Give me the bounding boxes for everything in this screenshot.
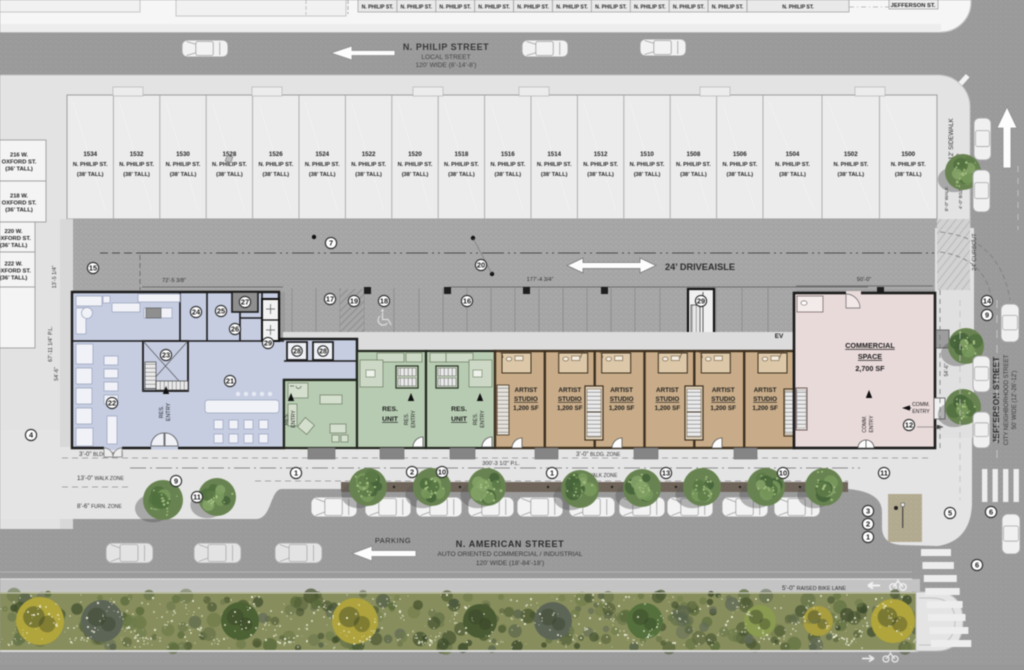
svg-text:28: 28	[293, 349, 301, 356]
svg-text:(36’ TALL): (36’ TALL)	[5, 167, 33, 173]
svg-text:N. PHILIP ST.: N. PHILIP ST.	[351, 162, 386, 168]
svg-text:RES.: RES.	[284, 413, 290, 425]
svg-text:N. PHILIP ST.: N. PHILIP ST.	[258, 162, 293, 168]
svg-text:1534: 1534	[83, 151, 97, 158]
svg-text:N. PHILIP ST.: N. PHILIP ST.	[712, 4, 744, 10]
svg-text:N. PHILIP ST.: N. PHILIP ST.	[676, 162, 711, 168]
svg-text:(36’ TALL): (36’ TALL)	[5, 208, 33, 214]
svg-text:24: 24	[192, 308, 201, 317]
svg-text:N. PHILIP ST.: N. PHILIP ST.	[782, 4, 814, 10]
svg-text:21: 21	[226, 377, 234, 386]
svg-text:RES.: RES.	[451, 406, 467, 413]
svg-text:13: 13	[662, 469, 670, 478]
svg-text:67’-11 1/4” P.L.: 67’-11 1/4” P.L.	[48, 326, 54, 362]
svg-text:3: 3	[866, 507, 870, 516]
svg-text:ENTRY: ENTRY	[480, 410, 486, 428]
svg-text:14: 14	[983, 297, 992, 306]
svg-text:(36’ TALL): (36’ TALL)	[0, 243, 27, 249]
svg-text:N. PHILIP ST.: N. PHILIP ST.	[166, 162, 201, 168]
svg-text:20: 20	[477, 261, 485, 270]
svg-text:N. PHILIP ST.: N. PHILIP ST.	[398, 162, 433, 168]
svg-text:ENTRY: ENTRY	[411, 410, 417, 428]
svg-text:N. PHILIP ST.: N. PHILIP ST.	[517, 4, 549, 10]
svg-text:OXFORD ST.: OXFORD ST.	[0, 236, 31, 242]
svg-text:N. PHILIP ST.: N. PHILIP ST.	[439, 4, 471, 10]
svg-text:(38’ TALL): (38’ TALL)	[309, 172, 336, 178]
svg-text:2: 2	[866, 520, 870, 529]
svg-text:ARTIST: ARTIST	[610, 387, 633, 394]
svg-text:19: 19	[350, 297, 358, 306]
svg-text:ARTIST: ARTIST	[656, 387, 679, 394]
svg-text:12’ SIDEWALK: 12’ SIDEWALK	[948, 117, 955, 159]
svg-text:STUDIO: STUDIO	[558, 396, 582, 403]
svg-text:1,200 SF: 1,200 SF	[609, 405, 635, 412]
svg-text:N. PHILIP ST.: N. PHILIP ST.	[305, 162, 340, 168]
svg-text:STUDIO: STUDIO	[711, 396, 735, 403]
svg-text:72’-5 3/8”: 72’-5 3/8”	[162, 278, 186, 284]
svg-text:N. PHILIP ST.: N. PHILIP ST.	[490, 162, 525, 168]
svg-text:ENTRY: ENTRY	[166, 403, 172, 422]
svg-text:120’ WIDE (18’-84’-18’): 120’ WIDE (18’-84’-18’)	[476, 560, 544, 567]
svg-text:1524: 1524	[315, 151, 329, 158]
svg-text:27: 27	[241, 298, 249, 307]
svg-text:LOCAL STREET: LOCAL STREET	[421, 54, 470, 61]
svg-text:ENTRY: ENTRY	[912, 409, 930, 415]
svg-text:218 W.: 218 W.	[10, 194, 28, 200]
svg-text:1520: 1520	[408, 151, 422, 158]
svg-text:11: 11	[193, 493, 201, 502]
svg-text:(38’ TALL): (38’ TALL)	[170, 172, 197, 178]
svg-text:(38’ TALL): (38’ TALL)	[726, 172, 753, 178]
svg-text:N. PHILIP ST.: N. PHILIP ST.	[722, 162, 757, 168]
svg-text:50’ WIDE (12’-26’-12’): 50’ WIDE (12’-26’-12’)	[1012, 371, 1018, 430]
svg-text:1: 1	[866, 533, 870, 542]
svg-text:(38’ TALL): (38’ TALL)	[262, 172, 289, 178]
svg-text:1,200 SF: 1,200 SF	[752, 405, 778, 412]
svg-text:1: 1	[294, 469, 298, 478]
svg-text:RES.: RES.	[404, 413, 410, 425]
svg-text:JEFFERSON ST.: JEFFERSON ST.	[891, 3, 936, 9]
svg-text:11: 11	[880, 469, 888, 478]
svg-text:N. PHILIP ST.: N. PHILIP ST.	[212, 162, 247, 168]
svg-text:(38’ TALL): (38’ TALL)	[355, 172, 382, 178]
svg-text:(36’ TALL): (36’ TALL)	[0, 276, 27, 282]
svg-text:(38’ TALL): (38’ TALL)	[587, 172, 614, 178]
svg-text:N. PHILIP ST.: N. PHILIP ST.	[119, 162, 154, 168]
svg-text:N. PHILIP ST.: N. PHILIP ST.	[630, 162, 665, 168]
svg-text:54’-6”: 54’-6”	[54, 367, 60, 381]
svg-text:(38’ TALL): (38’ TALL)	[895, 172, 922, 178]
svg-text:(38’ TALL): (38’ TALL)	[779, 172, 806, 178]
svg-text:RES.: RES.	[473, 413, 479, 425]
svg-text:N. PHILIP ST.: N. PHILIP ST.	[537, 162, 572, 168]
svg-text:1532: 1532	[130, 151, 144, 158]
svg-text:COMM.: COMM.	[862, 415, 868, 432]
svg-text:OXFORD ST.: OXFORD ST.	[2, 160, 37, 166]
svg-text:N. PHILIP ST.: N. PHILIP ST.	[444, 162, 479, 168]
svg-text:CITY NEIGHBORHOOD STREET: CITY NEIGHBORHOOD STREET	[1004, 354, 1010, 445]
svg-text:25: 25	[217, 307, 225, 316]
svg-text:N. PHILIP ST.: N. PHILIP ST.	[73, 162, 108, 168]
svg-text:GREENWAY: GREENWAY	[785, 620, 827, 626]
svg-text:300’-3 1/2” P.L.: 300’-3 1/2” P.L.	[482, 461, 520, 467]
svg-text:1526: 1526	[269, 151, 283, 158]
svg-text:(38’ TALL): (38’ TALL)	[541, 172, 568, 178]
svg-text:N. PHILIP ST.: N. PHILIP ST.	[891, 162, 926, 168]
svg-text:JEFFERSON STREET: JEFFERSON STREET	[992, 357, 1001, 444]
svg-text:2,700 SF: 2,700 SF	[855, 364, 885, 373]
svg-text:1504: 1504	[786, 151, 800, 158]
svg-text:6: 6	[989, 508, 993, 517]
svg-text:N. PHILIP ST.: N. PHILIP ST.	[583, 162, 618, 168]
svg-text:PARKING: PARKING	[375, 536, 411, 545]
svg-text:28: 28	[319, 349, 327, 356]
svg-text:OXFORD ST.: OXFORD ST.	[2, 201, 37, 207]
svg-text:1,200 SF: 1,200 SF	[655, 405, 681, 412]
svg-text:N. PHILIP ST.: N. PHILIP ST.	[400, 4, 432, 10]
svg-text:ENTRY: ENTRY	[869, 415, 875, 433]
svg-text:UNIT: UNIT	[451, 416, 468, 423]
svg-text:1508: 1508	[687, 151, 701, 158]
svg-text:5’-0” RAISED BIKE LANE: 5’-0” RAISED BIKE LANE	[782, 585, 846, 592]
svg-text:COMMERCIAL: COMMERCIAL	[845, 341, 895, 350]
svg-text:1502: 1502	[844, 151, 858, 158]
svg-text:N. PHILIP ST.: N. PHILIP ST.	[556, 4, 588, 10]
svg-text:17: 17	[326, 295, 334, 304]
svg-text:23: 23	[162, 351, 170, 360]
svg-text:9: 9	[174, 477, 178, 486]
svg-text:1,200 SF: 1,200 SF	[557, 405, 583, 412]
svg-text:(38’ TALL): (38’ TALL)	[837, 172, 864, 178]
svg-text:216 W.: 216 W.	[10, 153, 28, 159]
svg-text:2: 2	[410, 468, 414, 477]
svg-text:OXFORD ST.: OXFORD ST.	[0, 269, 31, 275]
svg-text:N. PHILIP ST.: N. PHILIP ST.	[362, 4, 394, 10]
svg-text:STUDIO: STUDIO	[514, 396, 538, 403]
svg-text:STUDIO: STUDIO	[656, 396, 680, 403]
svg-text:N. PHILIP STREET: N. PHILIP STREET	[403, 42, 489, 52]
svg-text:(38’ TALL): (38’ TALL)	[494, 172, 521, 178]
svg-text:(38’ TALL): (38’ TALL)	[216, 172, 243, 178]
svg-text:1500: 1500	[901, 151, 915, 158]
svg-text:6: 6	[975, 561, 979, 570]
svg-text:8’-6” FURN. ZONE: 8’-6” FURN. ZONE	[77, 503, 122, 510]
svg-text:N. PHILIP ST.: N. PHILIP ST.	[595, 4, 627, 10]
svg-text:1516: 1516	[501, 151, 515, 158]
svg-text:1506: 1506	[733, 151, 747, 158]
svg-text:10: 10	[438, 468, 446, 477]
svg-text:AUTO ORIENTED COMMERCIAL / IND: AUTO ORIENTED COMMERCIAL / INDUSTRIAL	[437, 551, 582, 558]
svg-text:1: 1	[550, 469, 554, 478]
svg-text:50’-0”: 50’-0”	[857, 277, 871, 283]
svg-text:1514: 1514	[547, 151, 561, 158]
svg-text:(38’ TALL): (38’ TALL)	[77, 172, 104, 178]
svg-text:N. PHILIP ST.: N. PHILIP ST.	[833, 162, 868, 168]
svg-text:(38’ TALL): (38’ TALL)	[680, 172, 707, 178]
svg-text:ENTRY: ENTRY	[291, 410, 297, 428]
svg-text:4’-0” BSZ: 4’-0” BSZ	[958, 189, 964, 209]
svg-text:5: 5	[948, 509, 952, 518]
svg-text:1522: 1522	[362, 151, 376, 158]
svg-text:N. PHILIP ST.: N. PHILIP ST.	[775, 162, 810, 168]
svg-text:N. PHILIP ST.: N. PHILIP ST.	[634, 4, 666, 10]
svg-text:18: 18	[380, 297, 388, 306]
svg-text:24’ DRIVEAISLE: 24’ DRIVEAISLE	[665, 262, 735, 272]
svg-text:ARTIST: ARTIST	[515, 387, 538, 394]
svg-text:RES.: RES.	[159, 406, 165, 419]
svg-text:9: 9	[985, 311, 989, 320]
svg-text:13’-5 1/4”: 13’-5 1/4”	[52, 265, 58, 288]
svg-text:ARTIST: ARTIST	[558, 387, 581, 394]
svg-text:15: 15	[89, 264, 97, 273]
svg-text:ARTIST: ARTIST	[712, 387, 735, 394]
svg-text:(38’ TALL): (38’ TALL)	[634, 172, 661, 178]
svg-text:N. PHILIP ST.: N. PHILIP ST.	[673, 4, 705, 10]
svg-text:222 W.: 222 W.	[4, 262, 22, 268]
svg-text:STUDIO: STUDIO	[753, 396, 777, 403]
svg-text:220 W.: 220 W.	[4, 229, 22, 235]
svg-text:29: 29	[264, 339, 272, 348]
svg-text:RES.: RES.	[382, 406, 398, 413]
svg-text:(38’ TALL): (38’ TALL)	[402, 172, 429, 178]
svg-text:STUDIO: STUDIO	[610, 396, 634, 403]
svg-text:SPACE: SPACE	[858, 352, 882, 361]
svg-text:3’-0” BLDG. ZONE: 3’-0” BLDG. ZONE	[576, 451, 621, 458]
svg-text:120’ WIDE (8’-14’-8’): 120’ WIDE (8’-14’-8’)	[416, 62, 477, 69]
svg-text:1,200 SF: 1,200 SF	[513, 405, 539, 412]
svg-text:ARTIST: ARTIST	[754, 387, 777, 394]
svg-text:1530: 1530	[176, 151, 190, 158]
svg-text:10: 10	[779, 469, 787, 478]
svg-text:UNIT: UNIT	[382, 416, 399, 423]
svg-text:(38’ TALL): (38’ TALL)	[123, 172, 150, 178]
svg-text:12: 12	[905, 421, 913, 430]
svg-text:13’-0” WALK ZONE: 13’-0” WALK ZONE	[77, 475, 124, 482]
svg-text:177’-4 3/4”: 177’-4 3/4”	[527, 277, 554, 283]
svg-text:COMM.: COMM.	[912, 402, 930, 408]
svg-text:16: 16	[463, 297, 471, 306]
svg-text:N. AMERICAN STREET: N. AMERICAN STREET	[456, 539, 564, 549]
svg-text:1512: 1512	[594, 151, 608, 158]
svg-text:1510: 1510	[640, 151, 654, 158]
svg-text:1,200 SF: 1,200 SF	[710, 405, 736, 412]
svg-text:54’-6”: 54’-6”	[944, 363, 950, 376]
svg-text:1518: 1518	[455, 151, 469, 158]
svg-text:29: 29	[697, 297, 705, 306]
svg-text:26: 26	[231, 325, 239, 334]
svg-text:EV: EV	[775, 333, 784, 340]
svg-text:7: 7	[329, 239, 333, 248]
svg-text:22: 22	[108, 399, 116, 408]
svg-text:N. PHILIP ST.: N. PHILIP ST.	[478, 4, 510, 10]
svg-text:(38’ TALL): (38’ TALL)	[448, 172, 475, 178]
